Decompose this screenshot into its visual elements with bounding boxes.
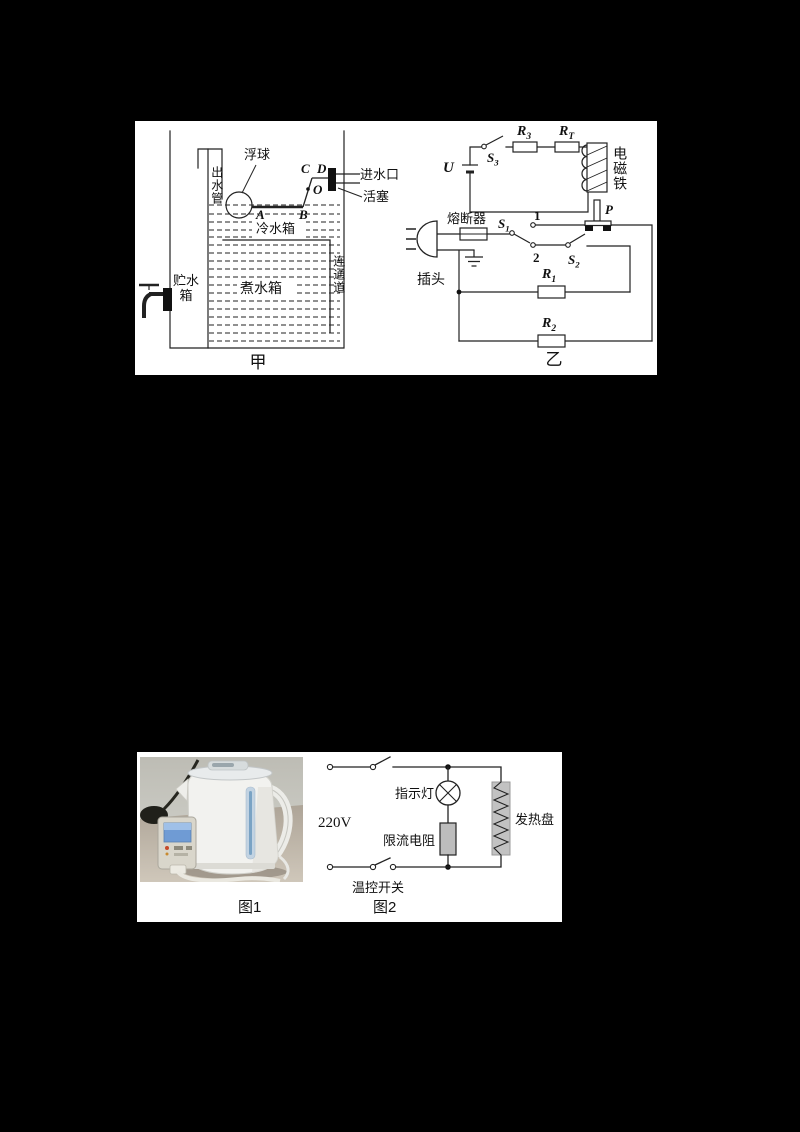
label-r2: R2 xyxy=(542,316,556,335)
label-armature-p: P xyxy=(605,203,613,218)
water-dispenser-diagram-lines xyxy=(135,121,657,375)
label-plug: 插头 xyxy=(417,271,445,287)
point-o-label: O xyxy=(313,183,322,198)
caption-fig2: 图2 xyxy=(373,899,396,916)
figure-electric-kettle: 220V 指示灯 限流电阻 温控开关 发热盘 图1 图2 xyxy=(137,752,562,922)
label-fuse: 熔断器 xyxy=(447,212,486,227)
label-rt: RT xyxy=(559,124,574,143)
caption-yi: 乙 xyxy=(541,350,567,370)
point-d-label: D xyxy=(317,162,326,177)
label-piston: 活塞 xyxy=(363,190,389,205)
label-storage-tank: 贮水 箱 xyxy=(170,274,202,304)
label-cold-tank: 冷水箱 xyxy=(256,222,295,237)
label-r1: R1 xyxy=(542,267,556,286)
thermo-switch-symbol xyxy=(327,858,395,870)
label-electromagnet: 电磁铁 xyxy=(612,146,628,191)
label-channel: 连通道 xyxy=(331,255,345,294)
label-heating-plate: 发热盘 xyxy=(515,813,554,828)
label-indicator-lamp: 指示灯 xyxy=(395,787,434,802)
switch-s2-symbol xyxy=(566,234,585,247)
label-float-ball: 浮球 xyxy=(244,148,270,163)
label-s1: S1 xyxy=(498,217,510,234)
label-s3: S3 xyxy=(487,151,499,168)
label-limit-resistor: 限流电阻 xyxy=(383,834,435,849)
label-contact-2: 2 xyxy=(533,251,540,266)
junction-dot xyxy=(457,290,462,295)
plug-icon xyxy=(406,221,437,257)
battery-symbol xyxy=(462,165,478,172)
label-outlet-pipe: 出水管 xyxy=(209,166,223,205)
point-a-label: A xyxy=(256,208,265,223)
label-voltage-u: U xyxy=(443,160,454,177)
resistor-r1-box xyxy=(538,286,565,298)
caption-fig1: 图1 xyxy=(238,899,261,916)
switch-s1-symbol xyxy=(510,231,536,248)
indicator-lamp-symbol xyxy=(436,781,460,805)
caption-jia: 甲 xyxy=(245,353,271,373)
label-storage-tank-line2: 箱 xyxy=(170,289,202,304)
label-contact-1: 1 xyxy=(534,209,541,224)
faucet-icon xyxy=(139,285,172,318)
figure-water-dispenser: 浮球 出水管 冷水箱 煮水箱 贮水 箱 连通道 进水口 活塞 A B C D O… xyxy=(135,121,657,375)
point-b-label: B xyxy=(299,208,308,223)
point-c-label: C xyxy=(301,162,310,177)
label-boiling-tank: 煮水箱 xyxy=(240,280,282,296)
label-r3: R3 xyxy=(517,124,531,143)
resistor-rt-box xyxy=(555,142,579,152)
limit-resistor-box xyxy=(440,823,456,855)
kettle-circuit-lines xyxy=(137,752,562,922)
switch-s3-symbol xyxy=(482,136,503,149)
electromagnet-coil xyxy=(582,143,607,192)
heater-plate-shape xyxy=(492,782,510,855)
resistor-r2-box xyxy=(538,335,565,347)
fuse-symbol xyxy=(460,228,487,240)
page: 浮球 出水管 冷水箱 煮水箱 贮水 箱 连通道 进水口 活塞 A B C D O… xyxy=(0,0,800,1132)
label-220v: 220V xyxy=(318,815,351,832)
power-switch-symbol xyxy=(327,757,390,770)
label-inlet: 进水口 xyxy=(360,168,399,183)
label-s2: S2 xyxy=(568,253,580,270)
resistor-r3-box xyxy=(513,142,537,152)
ground-icon xyxy=(465,250,483,266)
label-thermo-switch: 温控开关 xyxy=(352,881,404,896)
label-storage-tank-line1: 贮水 xyxy=(170,274,202,289)
